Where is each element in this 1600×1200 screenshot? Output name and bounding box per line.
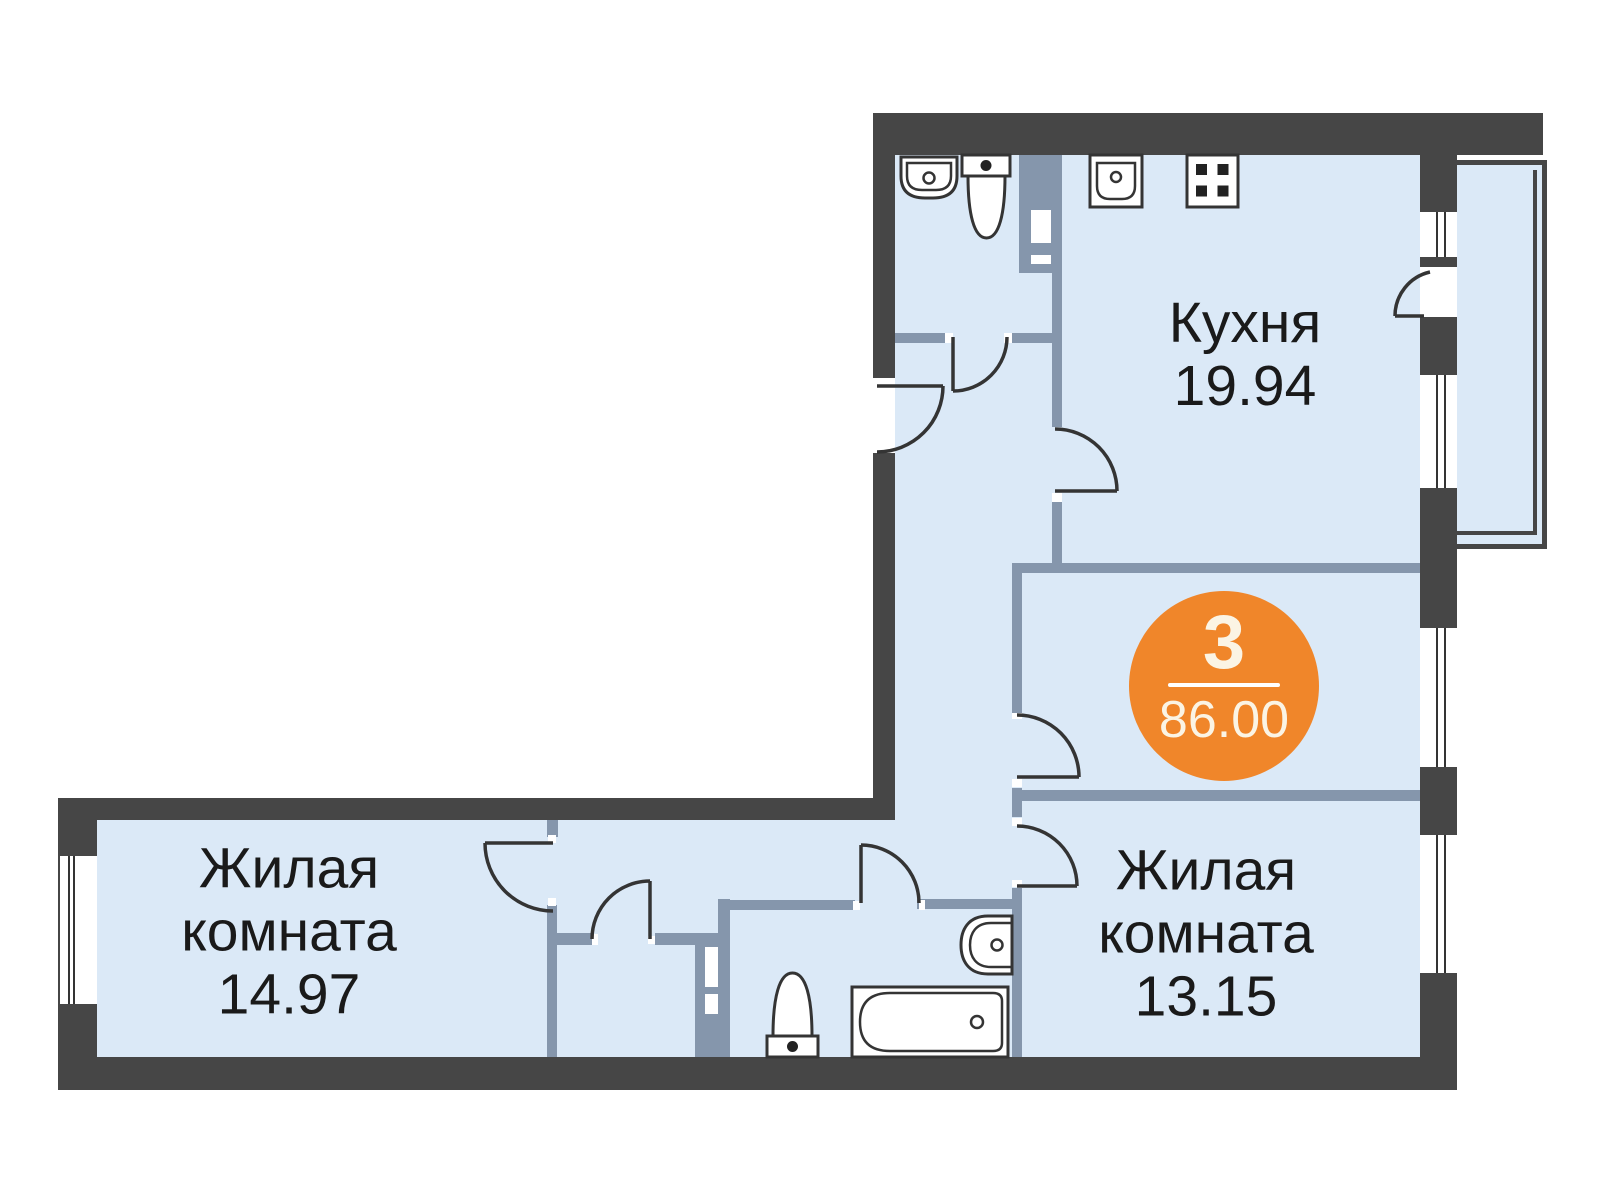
room-area: 14.97	[181, 964, 397, 1027]
exterior-wall	[1420, 155, 1457, 212]
wall-opening	[1004, 333, 1012, 343]
interior-wall	[895, 333, 947, 343]
exterior-wall	[1420, 317, 1457, 375]
wall-opening	[1012, 779, 1022, 787]
balcony-railing	[1452, 544, 1547, 549]
badge-rooms-count: 3	[1203, 612, 1245, 674]
wall-opening	[548, 835, 556, 843]
room-label-living-right: Жилая комната 13.15	[1098, 840, 1314, 1029]
window-pane-line	[1444, 212, 1446, 257]
wall-opening	[919, 900, 925, 910]
window-pane-line	[68, 856, 70, 1004]
wall-opening	[1031, 210, 1051, 243]
window-pane-line	[1444, 628, 1446, 767]
wall-opening	[705, 947, 718, 987]
wall-opening	[873, 378, 895, 453]
room-area: 13.15	[1098, 966, 1314, 1029]
room-name-line2: комната	[181, 901, 397, 964]
wall-opening	[1031, 255, 1051, 264]
wall-opening	[548, 898, 556, 906]
wall-opening	[1420, 267, 1457, 317]
window-icon	[1420, 375, 1457, 488]
interior-wall	[1005, 333, 1052, 343]
room-area: 19.94	[1169, 355, 1322, 418]
wall-opening	[592, 934, 598, 945]
interior-wall	[1012, 788, 1022, 817]
interior-wall	[557, 933, 592, 945]
window-icon	[1420, 835, 1457, 973]
wall-opening	[1052, 493, 1062, 502]
interior-wall	[1022, 790, 1420, 801]
exterior-wall	[1420, 488, 1457, 628]
interior-wall	[1052, 502, 1062, 563]
window-icon	[60, 856, 97, 1004]
interior-wall	[1012, 573, 1022, 713]
room-label-kitchen: Кухня 19.94	[1169, 292, 1322, 418]
wall-opening	[1012, 713, 1022, 719]
balcony-railing	[1457, 160, 1547, 165]
wall-opening	[1012, 818, 1022, 826]
window-icon	[1420, 212, 1457, 257]
window-pane-line	[1436, 212, 1438, 257]
badge-divider	[1168, 683, 1280, 687]
window-pane-line	[1436, 628, 1438, 767]
balcony-railing	[1542, 160, 1547, 549]
room-name-line2: комната	[1098, 903, 1314, 966]
badge-total-area: 86.00	[1159, 694, 1289, 746]
interior-wall	[1012, 888, 1022, 1057]
window-pane-line	[1436, 375, 1438, 488]
room-name: Кухня	[1169, 292, 1322, 355]
exterior-wall	[1420, 767, 1457, 835]
balcony-railing	[1533, 170, 1537, 535]
window-pane-line	[1444, 375, 1446, 488]
apartment-badge: 3 86.00	[1129, 591, 1319, 781]
exterior-wall	[58, 798, 895, 820]
interior-wall	[718, 900, 855, 910]
exterior-wall	[873, 113, 1543, 155]
window-pane-line	[1444, 835, 1446, 973]
room-name-line1: Жилая	[181, 838, 397, 901]
interior-wall	[1012, 563, 1420, 573]
exterior-wall	[1420, 973, 1457, 1090]
wall-opening	[1012, 880, 1022, 887]
interior-wall	[917, 899, 1012, 909]
exterior-wall	[873, 153, 895, 378]
balcony-railing	[1452, 531, 1537, 535]
room-label-living-left: Жилая комната 14.97	[181, 838, 397, 1027]
window-icon	[1420, 628, 1457, 767]
interior-wall	[547, 905, 557, 1057]
wall-opening	[648, 936, 655, 944]
wall-opening	[945, 333, 953, 343]
room-name-line1: Жилая	[1098, 840, 1314, 903]
window-pane-line	[1436, 835, 1438, 973]
exterior-wall	[1420, 257, 1457, 267]
interior-wall	[1052, 273, 1062, 427]
wall-opening	[853, 901, 860, 910]
floor-plan: Кухня 19.94 Жилая комната 14.97 Жилая ко…	[0, 0, 1600, 1200]
window-pane-line	[73, 856, 75, 1004]
exterior-wall	[873, 453, 895, 820]
wall-opening	[705, 994, 718, 1014]
exterior-wall	[58, 1057, 1457, 1090]
